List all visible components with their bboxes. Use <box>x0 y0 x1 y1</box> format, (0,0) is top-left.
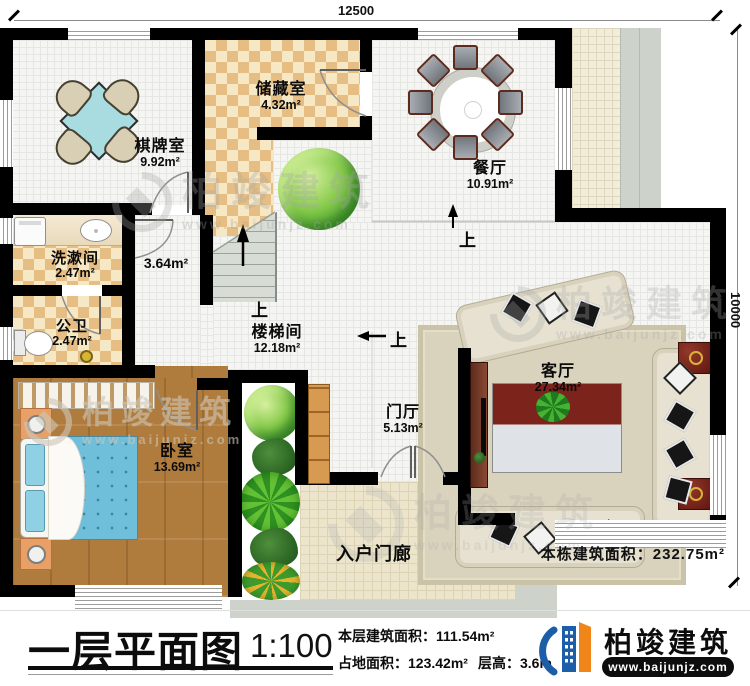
brand-logo-icon <box>538 616 602 682</box>
title-underline <box>28 666 333 670</box>
door-arc <box>135 220 173 258</box>
door-arc <box>150 172 188 213</box>
brand-name: 柏竣建筑 <box>604 621 732 661</box>
dimension-label-right: 10000 <box>728 292 743 328</box>
room-area-foyer: 5.13m² <box>383 422 423 435</box>
up-label-dining-step: 上 <box>459 226 476 251</box>
step-arrow-head <box>448 204 458 217</box>
room-label-foyer: 门厅 <box>386 405 420 421</box>
room-area-bedroom: 13.69m² <box>154 461 201 474</box>
room-area-dining: 10.91m² <box>467 178 514 191</box>
room-label-toilet: 公卫 <box>56 319 88 334</box>
up-label-stairs: 上 <box>251 296 268 321</box>
room-label-porch: 入户门廊 <box>336 545 412 563</box>
door-arc <box>320 70 366 116</box>
brand-url: www.baijunjz.com <box>602 657 734 677</box>
door-and-annotation-overlay <box>0 0 750 686</box>
floor-plan-canvas: 12500 10000 <box>0 0 750 686</box>
stat-floor-area: 本层建筑面积：111.54m² <box>338 626 494 646</box>
room-area-chess: 9.92m² <box>140 156 180 169</box>
hall-area-label: 3.64m² <box>144 256 188 270</box>
room-area-stair-hall: 12.18m² <box>254 342 301 355</box>
room-label-wash: 洗漱间 <box>51 251 99 266</box>
room-area-toilet: 2.47m² <box>52 335 92 348</box>
stat-footprint: 占地面积：123.42m² <box>338 653 468 673</box>
door-arc <box>157 390 197 430</box>
room-label-storage: 储藏室 <box>255 82 306 98</box>
room-label-chess: 棋牌室 <box>134 139 185 155</box>
foyer-arrow-head <box>357 331 369 341</box>
room-area-living: 27.34m² <box>535 381 582 394</box>
title-underline-thin <box>28 674 333 675</box>
plan-scale: 1:100 <box>250 627 333 665</box>
door-arc <box>415 446 445 477</box>
up-label-foyer: 上 <box>390 326 407 351</box>
door-arc <box>381 446 411 477</box>
room-area-storage: 4.32m² <box>261 99 301 112</box>
room-label-dining: 餐厅 <box>473 161 507 177</box>
building-total-area: 本栋建筑面积：232.75m² <box>541 543 725 564</box>
up-arrows <box>237 204 458 341</box>
room-area-wash: 2.47m² <box>55 267 95 280</box>
room-label-bedroom: 卧室 <box>160 444 194 460</box>
room-label-living: 客厅 <box>541 364 575 380</box>
title-divider <box>0 610 750 611</box>
dimension-label-top: 12500 <box>338 3 374 18</box>
room-label-stair-hall: 楼梯间 <box>251 325 302 341</box>
stair-arrow-head <box>237 224 249 242</box>
